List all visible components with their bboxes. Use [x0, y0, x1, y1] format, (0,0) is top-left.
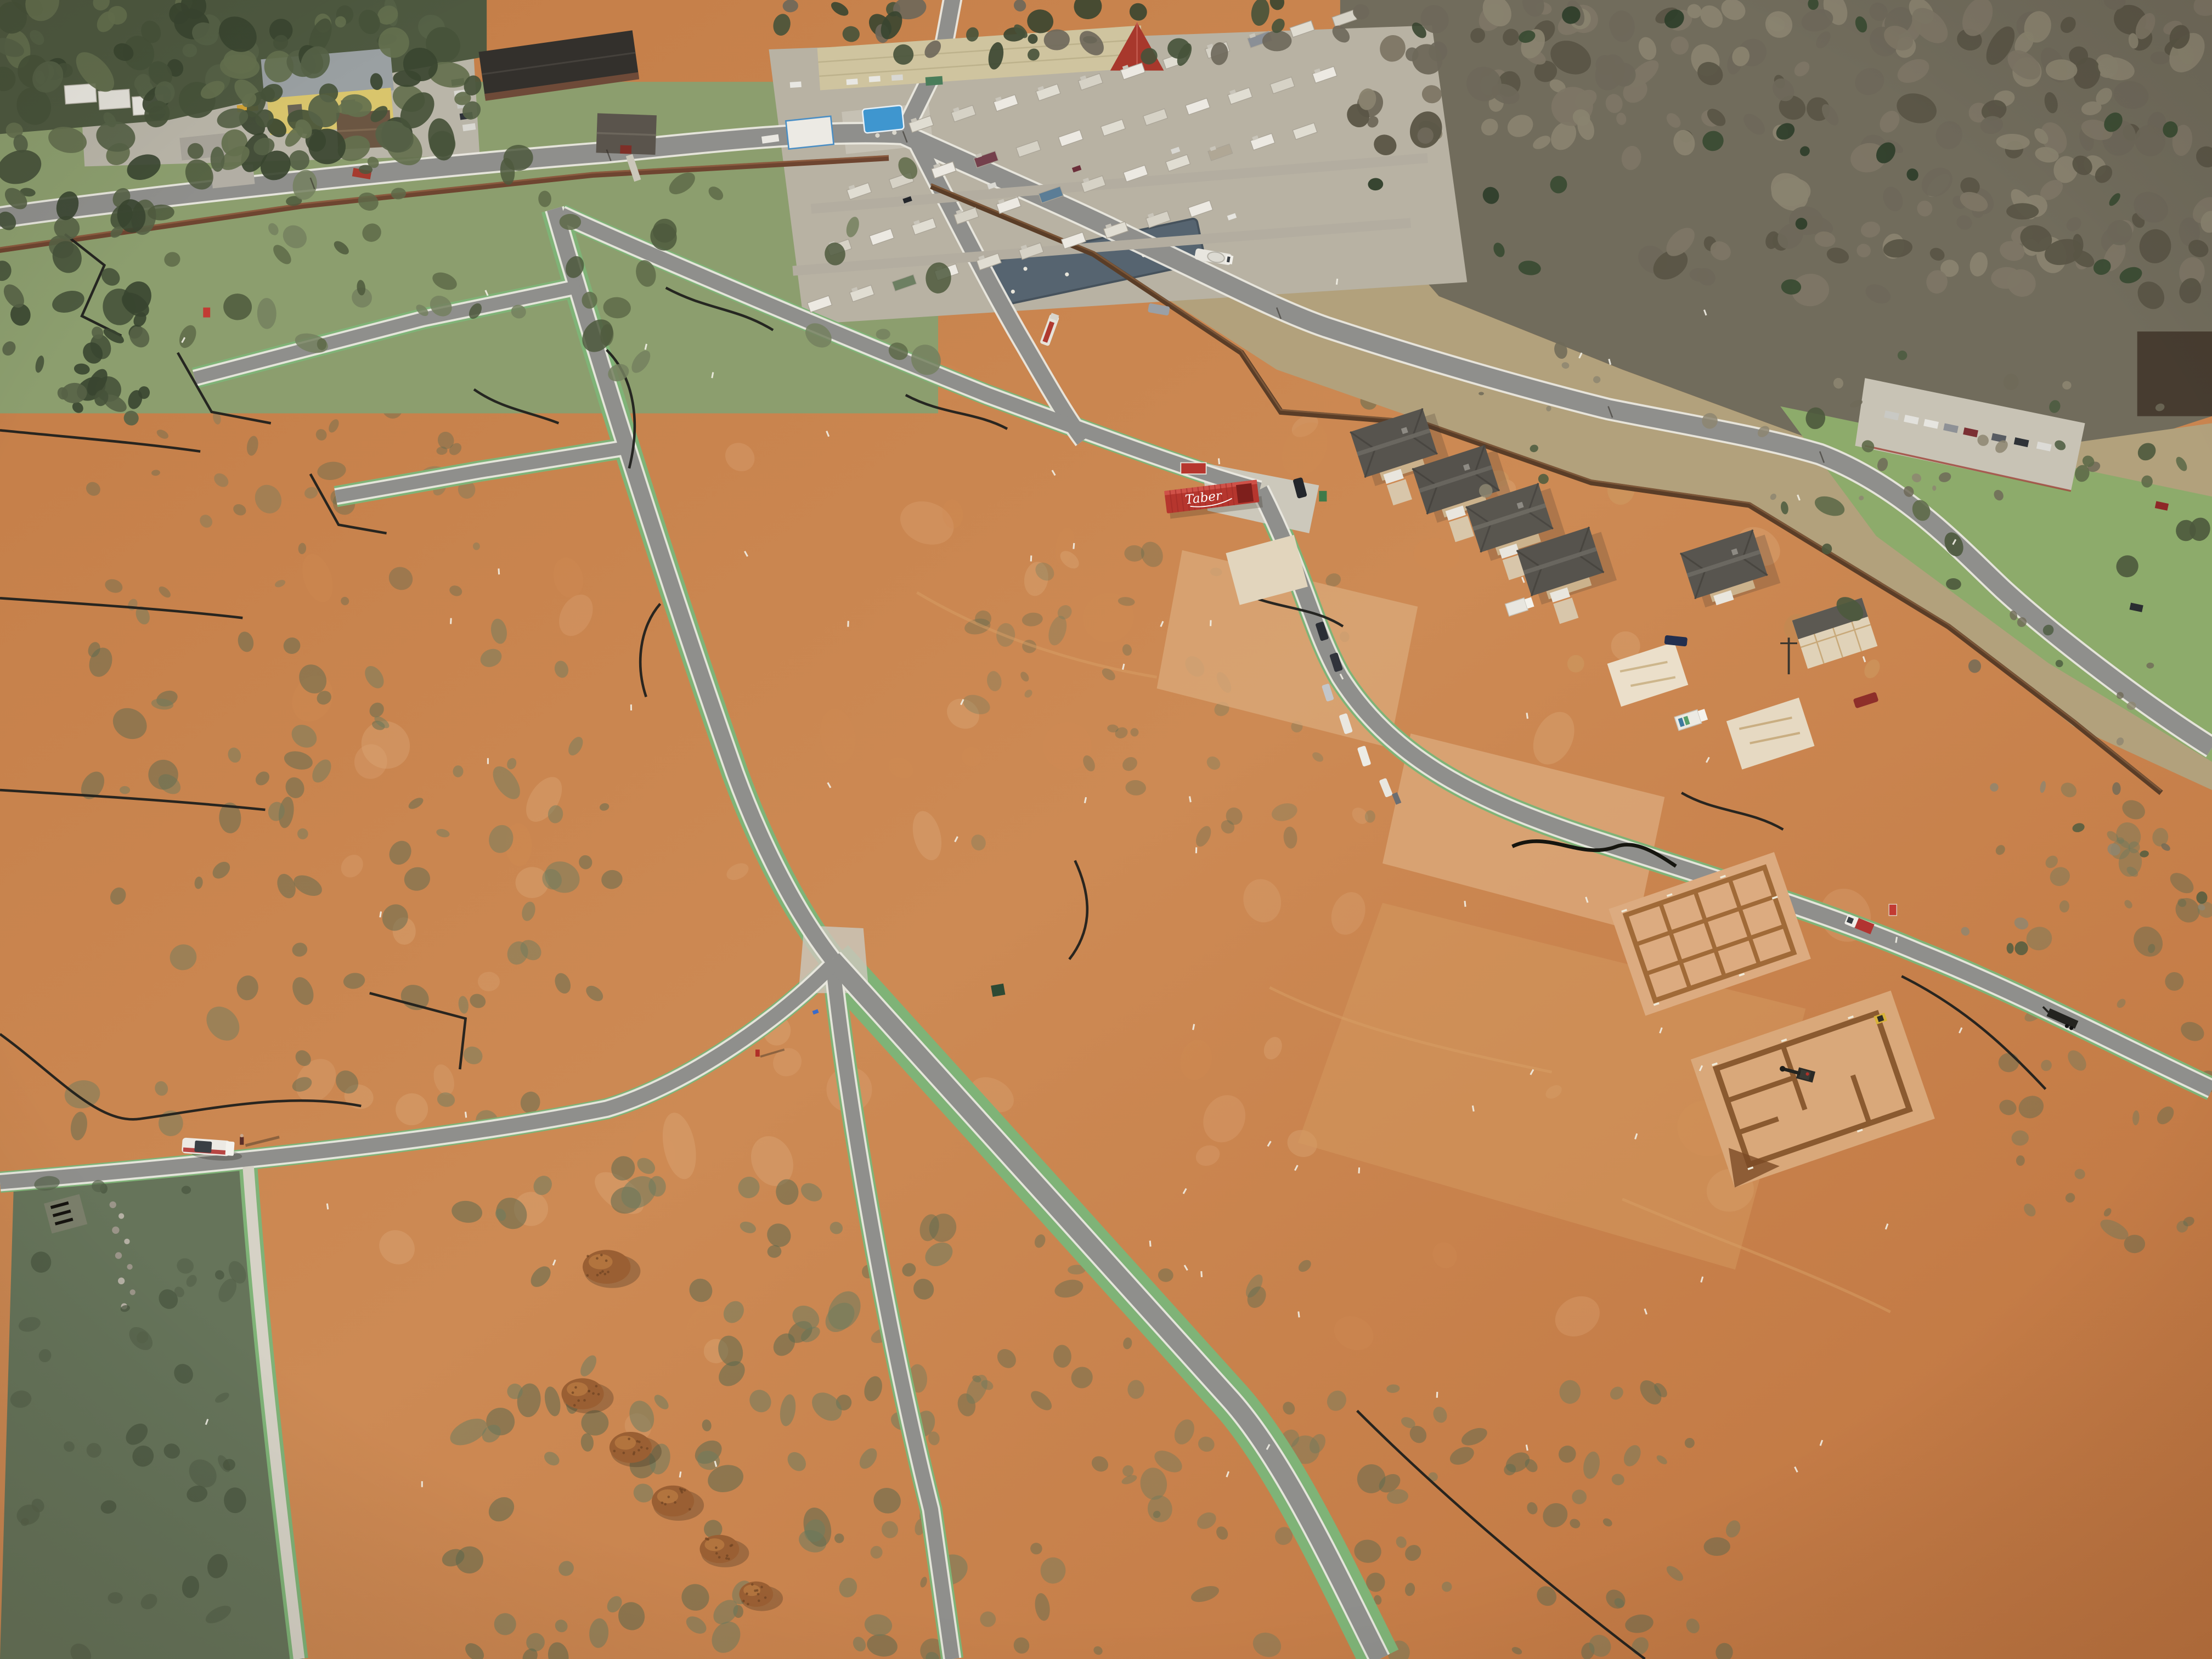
aerial-construction-site-photo: Taber: [0, 0, 2212, 1659]
scene-svg: Taber: [0, 0, 2212, 1659]
vignette: [0, 0, 2212, 1659]
